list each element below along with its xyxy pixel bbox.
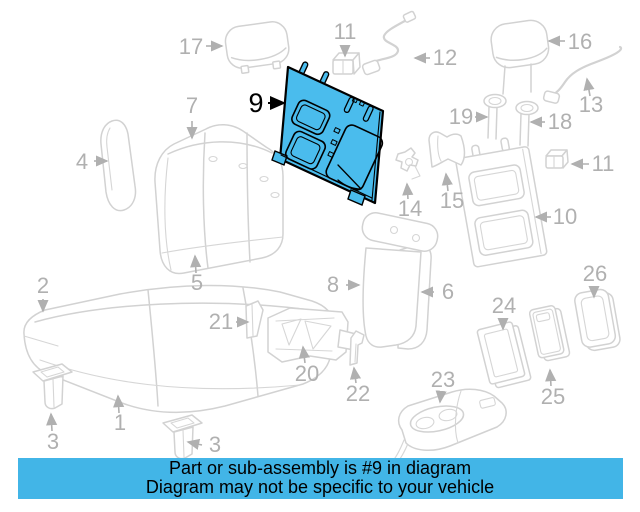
part-14-bracket[interactable] xyxy=(396,148,420,179)
callout-8[interactable]: 8 xyxy=(327,272,359,297)
callout-11-top[interactable]: 11 xyxy=(334,19,357,56)
svg-text:8: 8 xyxy=(327,272,339,297)
callout-7[interactable]: 7 xyxy=(186,93,198,138)
svg-text:17: 17 xyxy=(179,34,203,59)
svg-text:2: 2 xyxy=(37,273,49,298)
svg-text:4: 4 xyxy=(76,149,88,174)
part-11-clip-right[interactable] xyxy=(546,150,568,168)
part-10-panel[interactable] xyxy=(453,134,547,267)
part-9-panel-highlighted[interactable] xyxy=(272,61,385,205)
parts-diagram-canvas: 17 11 12 16 13 19 18 11 10 9 7 4 xyxy=(0,0,640,512)
svg-text:22: 22 xyxy=(346,381,370,406)
svg-text:18: 18 xyxy=(548,109,572,134)
part-17-headrest[interactable] xyxy=(224,20,292,75)
callout-18[interactable]: 18 xyxy=(531,109,572,134)
svg-text:9: 9 xyxy=(248,88,263,118)
part-3-latch-left[interactable] xyxy=(33,364,72,409)
part-7-seat-back[interactable] xyxy=(155,125,283,274)
svg-text:24: 24 xyxy=(492,293,516,318)
svg-text:14: 14 xyxy=(398,196,422,221)
svg-text:21: 21 xyxy=(209,309,233,334)
svg-text:7: 7 xyxy=(186,93,198,118)
highlight-banner: Part or sub-assembly is #9 in diagram Di… xyxy=(18,458,623,499)
svg-text:13: 13 xyxy=(579,92,603,117)
part-3-latch-right[interactable] xyxy=(163,415,202,459)
part-12-cable[interactable] xyxy=(362,11,416,76)
part-22-bracket[interactable] xyxy=(350,331,364,365)
part-16-headrest[interactable] xyxy=(489,18,551,94)
svg-text:25: 25 xyxy=(541,384,565,409)
svg-text:15: 15 xyxy=(440,188,464,213)
svg-text:16: 16 xyxy=(568,29,592,54)
svg-text:19: 19 xyxy=(449,104,473,129)
callout-9-highlighted[interactable]: 9 xyxy=(248,88,284,118)
callout-22[interactable]: 22 xyxy=(346,368,370,406)
part-20-frame[interactable] xyxy=(268,308,356,362)
svg-text:5: 5 xyxy=(191,270,203,295)
part-19-guide[interactable] xyxy=(484,95,506,140)
svg-text:10: 10 xyxy=(553,204,577,229)
svg-text:1: 1 xyxy=(114,410,126,435)
callout-13[interactable]: 13 xyxy=(579,79,603,117)
svg-text:6: 6 xyxy=(442,279,454,304)
part-25-panel[interactable] xyxy=(529,304,570,362)
part-4-bolster[interactable] xyxy=(101,120,136,210)
callout-17[interactable]: 17 xyxy=(179,34,222,59)
part-24-frame[interactable] xyxy=(477,320,532,389)
part-26-frame[interactable] xyxy=(574,288,622,353)
callout-11-right[interactable]: 11 xyxy=(572,151,614,176)
callout-25[interactable]: 25 xyxy=(541,370,565,409)
banner-line-1: Part or sub-assembly is #9 in diagram xyxy=(169,458,471,478)
part-11-clip-top[interactable] xyxy=(333,53,360,74)
svg-text:3: 3 xyxy=(47,429,59,454)
callout-2[interactable]: 2 xyxy=(37,273,49,311)
callout-19[interactable]: 19 xyxy=(449,104,487,129)
callout-12[interactable]: 12 xyxy=(415,45,457,70)
svg-text:3: 3 xyxy=(209,432,221,457)
part-18-guide[interactable] xyxy=(516,102,538,147)
part-23-armrest[interactable] xyxy=(391,389,506,465)
svg-text:12: 12 xyxy=(433,45,457,70)
svg-text:23: 23 xyxy=(431,367,455,392)
banner-line-2: Diagram may not be specific to your vehi… xyxy=(146,477,494,497)
callout-3-left[interactable]: 3 xyxy=(47,414,59,454)
callout-16[interactable]: 16 xyxy=(549,29,592,54)
svg-text:20: 20 xyxy=(295,361,319,386)
svg-text:26: 26 xyxy=(583,261,607,286)
svg-text:11: 11 xyxy=(592,151,615,176)
callout-14[interactable]: 14 xyxy=(398,184,422,221)
part-15-bracket[interactable] xyxy=(429,132,464,167)
svg-text:11: 11 xyxy=(334,19,357,44)
